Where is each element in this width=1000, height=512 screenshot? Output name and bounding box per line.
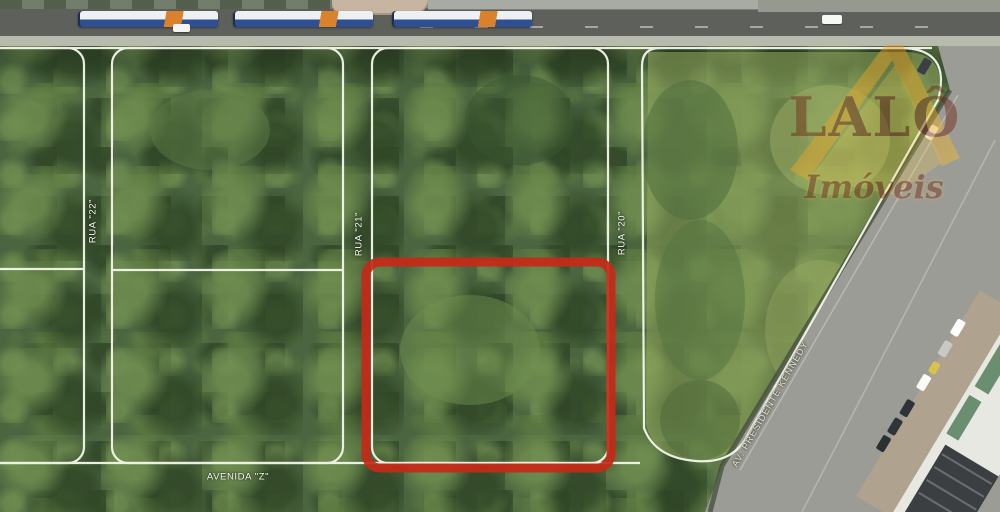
upper-road-shoulder [758, 0, 1000, 12]
car-icon [822, 15, 842, 24]
map-overlay [0, 0, 1000, 512]
terminal-roof [428, 0, 758, 10]
bus-icon [392, 11, 532, 27]
bus-icon [233, 11, 373, 27]
roadside-hedge [0, 0, 332, 9]
street-label-rua-21: RUA "21" [354, 212, 365, 256]
bus-icon [78, 11, 218, 27]
street-label-rua-20: RUA "20" [617, 211, 628, 255]
car-icon [173, 24, 190, 32]
top-road-strip [0, 0, 1000, 46]
street-label-avenida-z: AVENIDA "Z" [207, 472, 269, 483]
street-label-rua-22: RUA "22" [88, 199, 99, 243]
lot-outline-1 [0, 48, 84, 463]
aerial-listing-image: RUA "22" RUA "21" RUA "20" AVENIDA "Z" A… [0, 0, 1000, 512]
